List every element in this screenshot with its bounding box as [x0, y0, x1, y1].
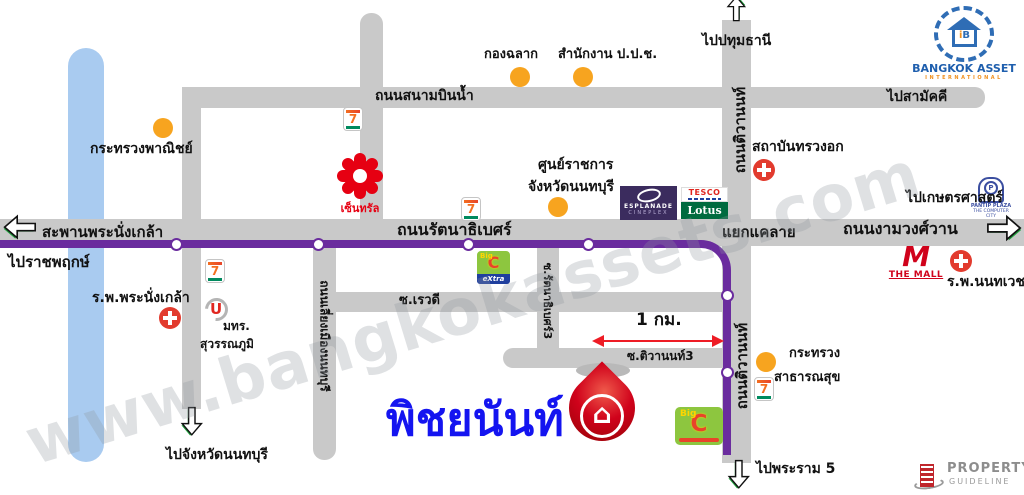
road-label-soi-rattanathibet3: ซ.รัตนาธิเบศร์3 — [539, 263, 557, 339]
place-chest-institute: สถาบันทรวงอก — [752, 139, 844, 155]
direction-pathumthani: ไปปทุมธานี — [702, 33, 771, 49]
direction-kasetsart: ไปเกษตรศาสตร์ — [906, 190, 1003, 206]
marker-lottery-bureau — [510, 67, 530, 87]
house-roof-icon — [947, 17, 981, 30]
scale-label: 1 กม. — [636, 311, 682, 331]
house-body-icon: iB — [952, 30, 977, 47]
place-rmut-2: สุวรรณภูมิ — [200, 338, 254, 352]
place-public-health-1: กระทรวง — [789, 347, 840, 362]
destination-label: พิชยนันท์ — [386, 394, 564, 446]
direction-nonthaburi: ไปจังหวัดนนทบุรี — [166, 447, 268, 463]
big-c-logo: Big C — [675, 407, 723, 445]
pin-ring: ⌂ — [580, 394, 624, 438]
seven-eleven-icon: 7 — [205, 259, 225, 283]
location-pin: ⌂ — [560, 358, 644, 470]
marker-nacc-office — [573, 67, 593, 87]
arrow-nonthaburi-south — [175, 406, 207, 438]
road-label-bridge: สะพานพระนั่งเกล้า — [42, 224, 163, 241]
place-government-center-1: ศูนย์ราชการ — [538, 157, 613, 173]
place-rmut-1: มทร. — [223, 320, 250, 334]
marker-government-center — [548, 197, 568, 217]
central-logo: เซ็นทรัล — [331, 152, 389, 218]
direction-rama5: ไปพระราม 5 — [756, 461, 835, 477]
arrow-pathumthani-north — [723, 0, 751, 22]
route-dot — [170, 238, 183, 251]
tesco-lotus-logo: TESCO Lotus — [681, 187, 728, 220]
road-label-rattanathibet: ถนนรัตนาธิเบศร์ — [397, 221, 512, 239]
route-dot — [582, 238, 595, 251]
house-icon: ⌂ — [583, 397, 621, 433]
map-canvas: 7 7 7 7 ถนนสนามบินน้ำ ไปสามัคคี ไปปทุมธา… — [0, 0, 1024, 495]
road-label-liang-mueang: ถนนเลี่ยงเมืองนนทบุรี — [315, 280, 334, 391]
bangkok-asset-logo: iB BANGKOK ASSET INTERNATIONAL — [912, 6, 1016, 86]
direction-samakkhi: ไปสามัคคี — [887, 89, 947, 105]
route-dot — [462, 238, 475, 251]
marker-public-health — [756, 352, 776, 372]
hospital-icon-prananklao — [159, 307, 181, 329]
property-guideline-logo: PROPERTY GUIDELINE — [916, 460, 1022, 492]
esplanade-swoosh-icon — [635, 187, 661, 205]
marker-commerce-ministry — [153, 118, 173, 138]
route-dot — [721, 289, 734, 302]
road-label-tiwanon-lower: ถนนติวานนท์ — [730, 323, 754, 410]
place-commerce-ministry: กระทรวงพาณิชย์ — [90, 141, 193, 157]
big-c-extra-logo: Big C eXtra — [477, 251, 510, 284]
building-icon — [916, 462, 944, 489]
place-government-center-2: จังหวัดนนทบุรี — [528, 179, 614, 195]
road-label-soi-rewadee: ซ.เรวดี — [399, 294, 440, 309]
place-lottery-bureau: กองฉลาก — [484, 48, 538, 63]
scale-arrow — [592, 335, 724, 347]
direction-ratchaphruek: ไปราชพฤกษ์ — [8, 254, 90, 271]
road-sanambin — [182, 87, 985, 108]
esplanade-logo: ESPLANADE CINEPLEX — [620, 186, 677, 220]
hospital-icon-nonthavej — [950, 250, 972, 272]
junction-label-khae-rai: แยกแคลาย — [722, 224, 796, 241]
the-mall-logo: M THE MALL — [884, 244, 948, 288]
hospital-icon-chest-institute — [753, 159, 775, 181]
mall-m-icon: M — [884, 244, 948, 270]
place-public-health-2: สาธารณสุข — [774, 371, 840, 386]
arrow-rama5-south — [722, 459, 754, 491]
seven-eleven-icon: 7 — [343, 107, 363, 131]
place-nonthavej-hospital: ร.พ.นนทเวช — [947, 274, 1024, 290]
road-label-ngamwongwan: ถนนงามวงศ์วาน — [843, 220, 958, 238]
seven-eleven-icon: 7 — [754, 377, 774, 401]
arrow-bridge-west — [1, 213, 37, 243]
route-dot — [312, 238, 325, 251]
place-nacc-office: สำนักงาน ป.ป.ช. — [558, 48, 657, 63]
road-label-tiwanon-upper: ถนนติวานนท์ — [728, 87, 752, 174]
place-prananklao-hospital: ร.พ.พระนั่งเกล้า — [92, 290, 190, 306]
road-label-sanambin: ถนนสนามบินน้ำ — [375, 88, 474, 104]
seven-eleven-icon: 7 — [461, 197, 481, 221]
